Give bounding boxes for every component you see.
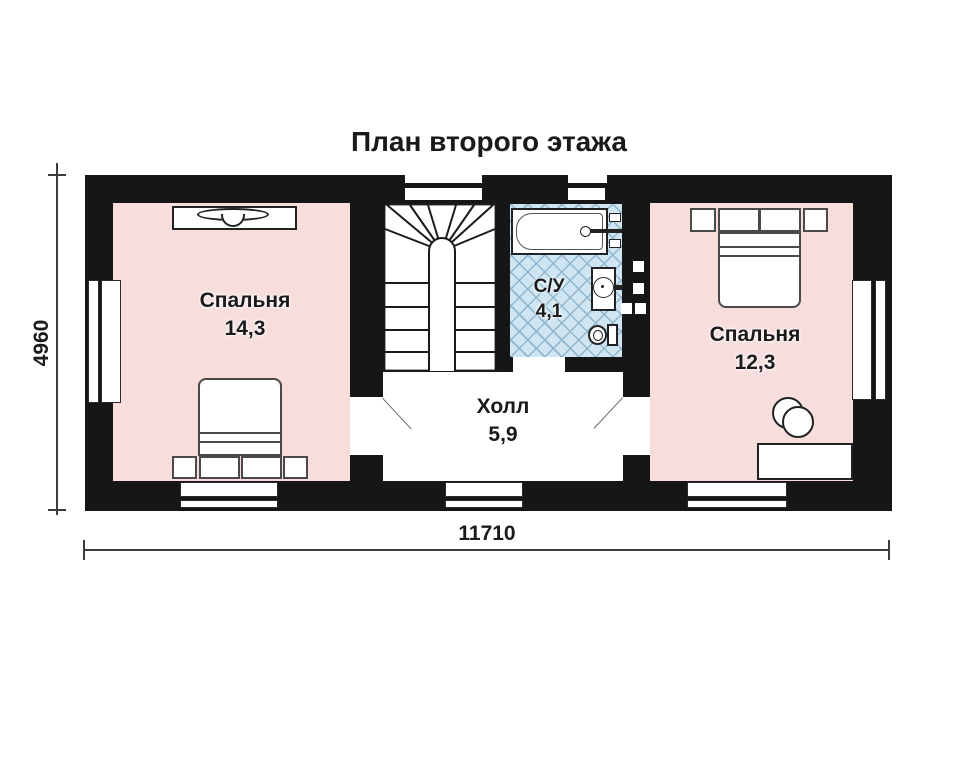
sink-drain [601, 285, 604, 288]
page-title: План второго этажа [0, 126, 978, 158]
dimension-tick [888, 540, 890, 560]
window-bottom-left-sill [180, 500, 278, 508]
chair-icon [782, 406, 814, 438]
headboard-icon [759, 208, 801, 232]
label-bathroom: С/У 4,1 [510, 275, 588, 324]
room-name: Холл [403, 393, 603, 421]
room-name: Спальня [145, 287, 345, 315]
vent-top-bathroom [568, 188, 605, 200]
toilet-icon [588, 325, 607, 345]
door-opening-bedroom-left [350, 397, 383, 455]
room-area: 5,9 [403, 421, 603, 449]
window-right-inner [852, 280, 872, 400]
sink-icon [591, 267, 616, 311]
fixture-icon [609, 213, 621, 222]
tap-icon [615, 285, 623, 290]
door-opening-bathroom [513, 357, 565, 372]
vent-top-stairs [405, 175, 482, 183]
dimension-tick [48, 174, 66, 176]
flue-square [621, 303, 632, 314]
nightstand-icon [283, 456, 308, 479]
toilet-tank-icon [607, 324, 618, 346]
flue-square [635, 303, 646, 314]
window-bottom-right [687, 482, 787, 497]
window-bottom-hall-sill [445, 500, 523, 508]
room-area: 12,3 [655, 349, 855, 377]
label-hall: Холл 5,9 [403, 393, 603, 450]
window-bottom-hall [445, 482, 523, 497]
floor-plan: Спальня 14,3 Холл 5,9 С/У 4,1 Спальня 12… [85, 175, 892, 511]
dimension-line-height [56, 163, 58, 515]
label-bedroom-right: Спальня 12,3 [655, 321, 855, 378]
dimension-label-height: 4960 [30, 315, 54, 371]
headboard-icon [718, 208, 760, 232]
room-name: Спальня [655, 321, 855, 349]
door-opening-bedroom-right [623, 397, 650, 455]
nightstand-icon [690, 208, 716, 232]
bed-icon [198, 378, 282, 456]
dimension-label-width: 11710 [397, 522, 577, 546]
window-left-outer [88, 280, 99, 403]
stairs-icon [383, 203, 497, 372]
dimension-line-width [84, 549, 890, 551]
toilet-bowl [593, 330, 603, 341]
window-bottom-right-sill [687, 500, 787, 508]
window-bottom-left [180, 482, 278, 497]
flue-square [633, 283, 644, 294]
bed-icon [718, 232, 801, 308]
label-bedroom-left: Спальня 14,3 [145, 287, 345, 344]
floor-plan-sheet: План второго этажа [0, 0, 978, 768]
nightstand-icon [172, 456, 197, 479]
bed-pillow-line [718, 246, 801, 257]
room-area: 14,3 [145, 315, 345, 343]
bed-foot-icon [199, 456, 240, 479]
fixture-icon [609, 239, 621, 248]
dimension-tick [83, 540, 85, 560]
dimension-tick [48, 509, 66, 511]
room-name: С/У [510, 275, 588, 300]
desk-icon [757, 443, 853, 480]
vent-top-bathroom [568, 175, 607, 183]
stairs [383, 203, 497, 372]
flue-square [633, 261, 644, 272]
nightstand-icon [803, 208, 828, 232]
drain-icon [580, 226, 591, 237]
window-right-outer [875, 280, 886, 400]
bed-blanket-line [198, 432, 282, 443]
bed-foot-icon [241, 456, 282, 479]
room-area: 4,1 [510, 300, 588, 325]
window-left-inner [101, 280, 121, 403]
vent-top-stairs [405, 188, 482, 200]
faucet-icon [590, 229, 622, 233]
